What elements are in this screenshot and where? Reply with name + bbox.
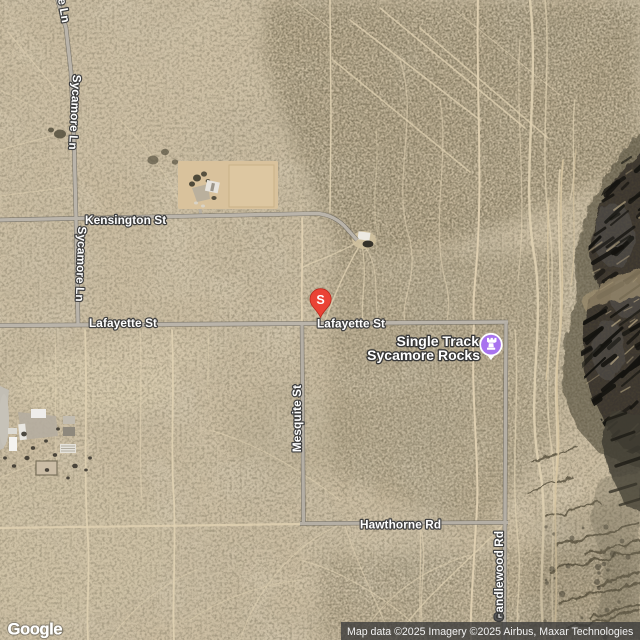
svg-text:Map data ©2025 Imagery ©2025 A: Map data ©2025 Imagery ©2025 Airbus, Max… (347, 626, 633, 638)
svg-text:Candlewood Rd: Candlewood Rd (492, 531, 506, 621)
svg-text:Sycamore Rocks: Sycamore Rocks (367, 347, 480, 363)
svg-text:S: S (316, 293, 324, 307)
svg-text:Sycamore Ln: Sycamore Ln (73, 226, 90, 302)
svg-text:Lafayette St: Lafayette St (317, 317, 385, 331)
svg-text:Kensington St: Kensington St (85, 213, 166, 227)
svg-text:Mesquite St: Mesquite St (290, 385, 304, 452)
svg-text:Lafayette St: Lafayette St (89, 316, 157, 330)
svg-text:Google: Google (8, 620, 63, 639)
svg-text:Hawthorne Rd: Hawthorne Rd (360, 518, 441, 532)
